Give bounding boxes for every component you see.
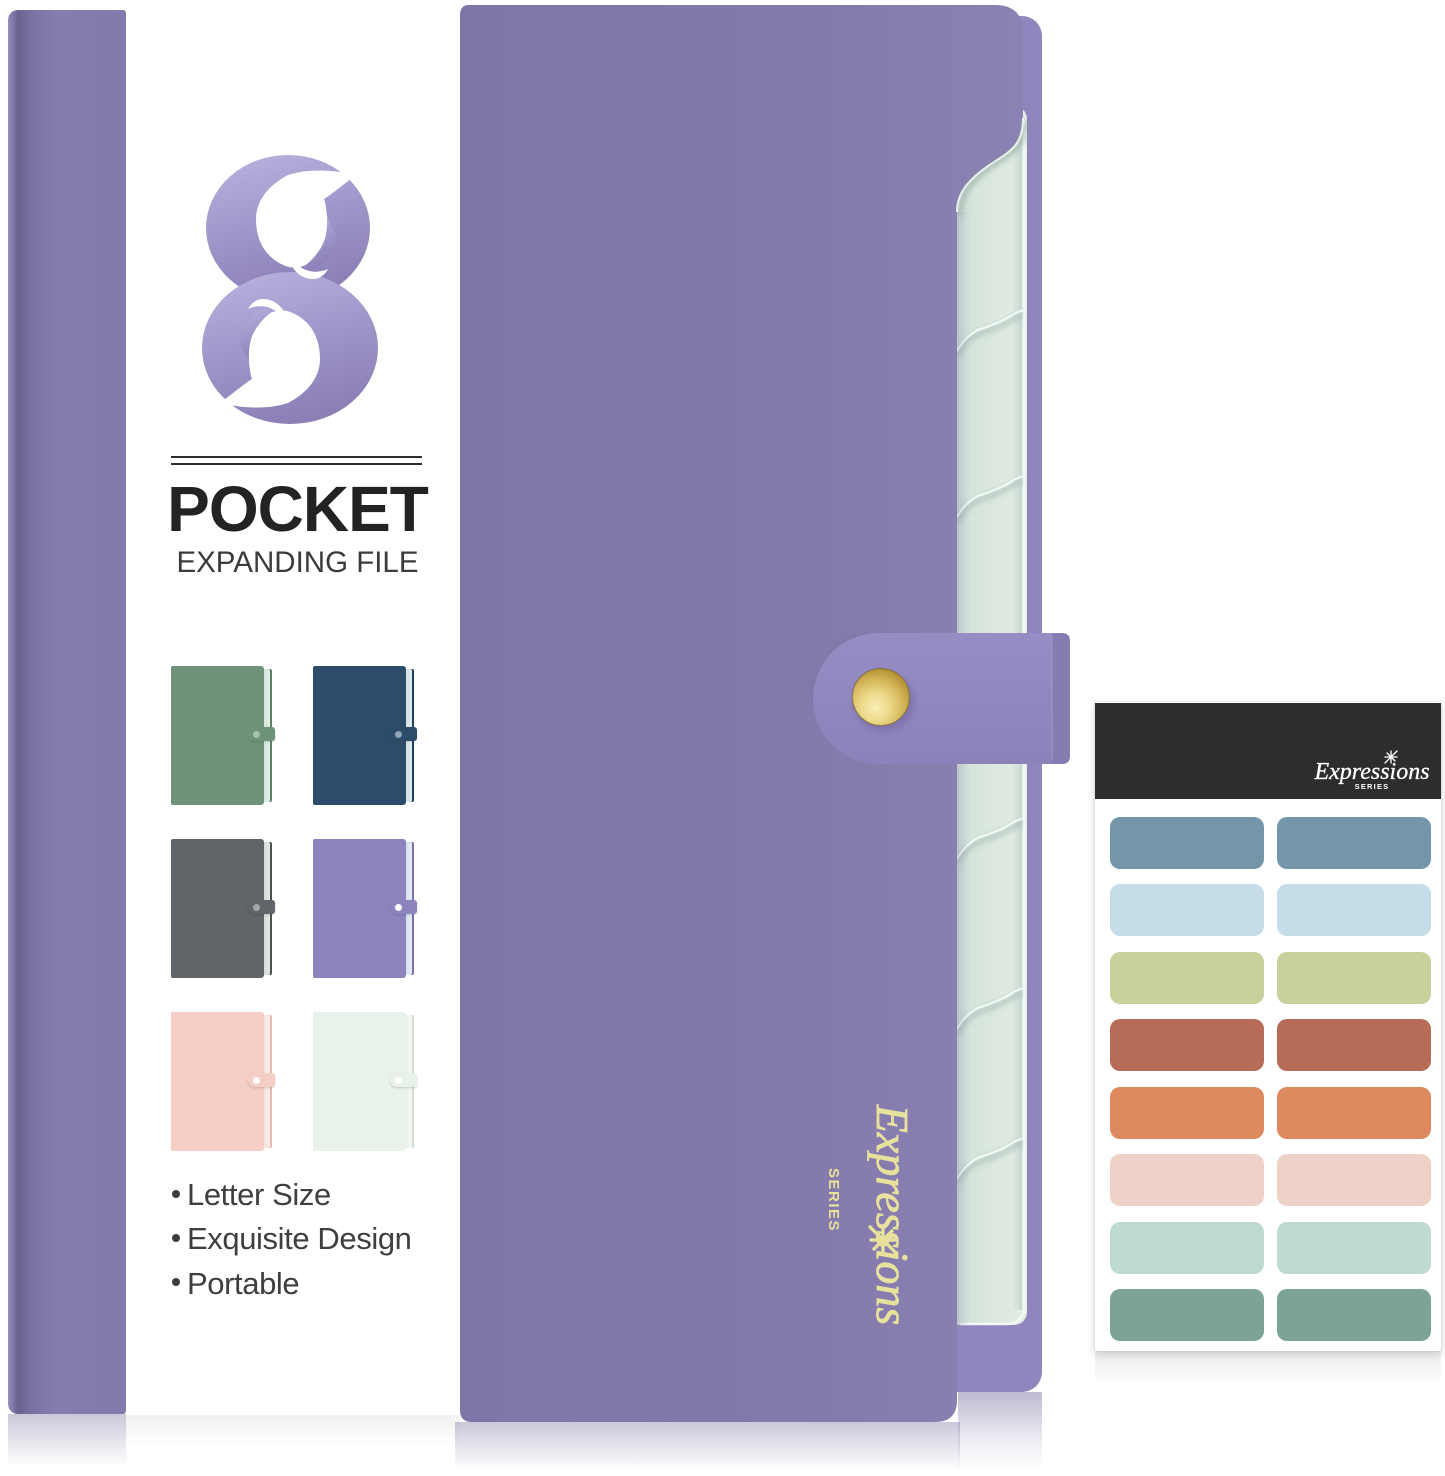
svg-text:SERIES: SERIES (1355, 782, 1390, 791)
svg-text:SERIES: SERIES (825, 1168, 842, 1232)
svg-text:Expressions: Expressions (867, 1104, 918, 1326)
